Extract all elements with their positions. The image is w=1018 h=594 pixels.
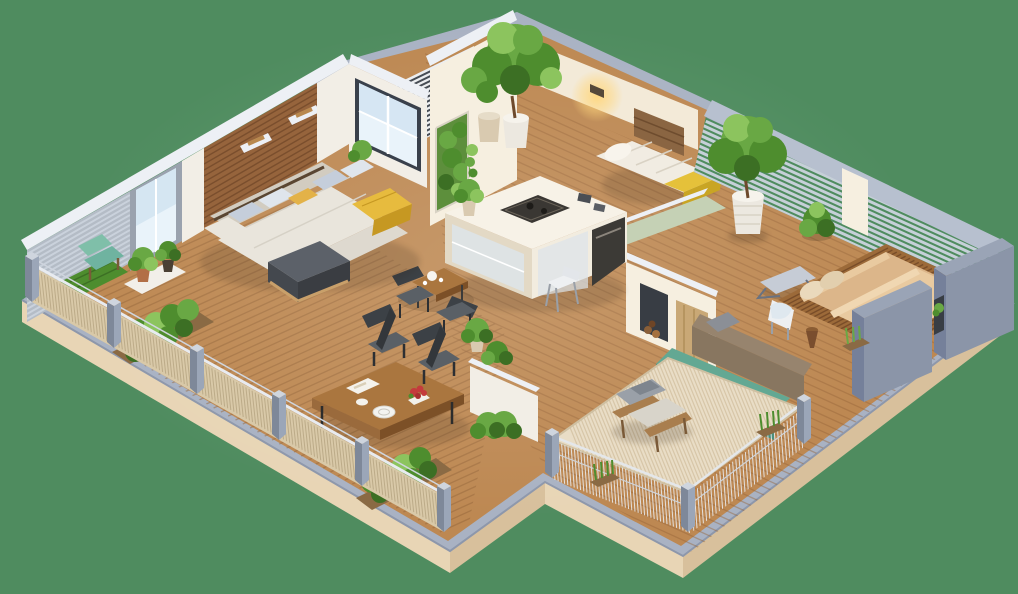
bowl bbox=[356, 399, 368, 406]
white-pier bbox=[182, 148, 204, 243]
railing-post bbox=[797, 398, 804, 444]
railing-post bbox=[545, 432, 552, 478]
railing-post bbox=[444, 486, 451, 532]
railing-post bbox=[197, 348, 204, 394]
railing-post bbox=[688, 486, 695, 532]
plate bbox=[373, 406, 395, 418]
railing-post bbox=[272, 394, 279, 440]
railing-post bbox=[32, 256, 39, 302]
floorplan-render bbox=[0, 0, 1018, 594]
railing-post bbox=[114, 302, 121, 348]
railing-post bbox=[107, 302, 114, 348]
railing-post bbox=[355, 440, 362, 486]
black-pot bbox=[162, 260, 174, 272]
railing-post bbox=[552, 432, 559, 478]
railing-post bbox=[362, 440, 369, 486]
railing-post bbox=[804, 398, 811, 444]
teapot bbox=[427, 271, 437, 281]
railing-post bbox=[681, 486, 688, 532]
floorplan-svg bbox=[0, 0, 1018, 594]
railing-post bbox=[279, 394, 286, 440]
sconce-glow bbox=[571, 70, 623, 122]
railing-post bbox=[437, 486, 444, 532]
railing-post bbox=[25, 256, 32, 302]
white-pier bbox=[842, 168, 868, 236]
railing-post bbox=[190, 348, 197, 394]
